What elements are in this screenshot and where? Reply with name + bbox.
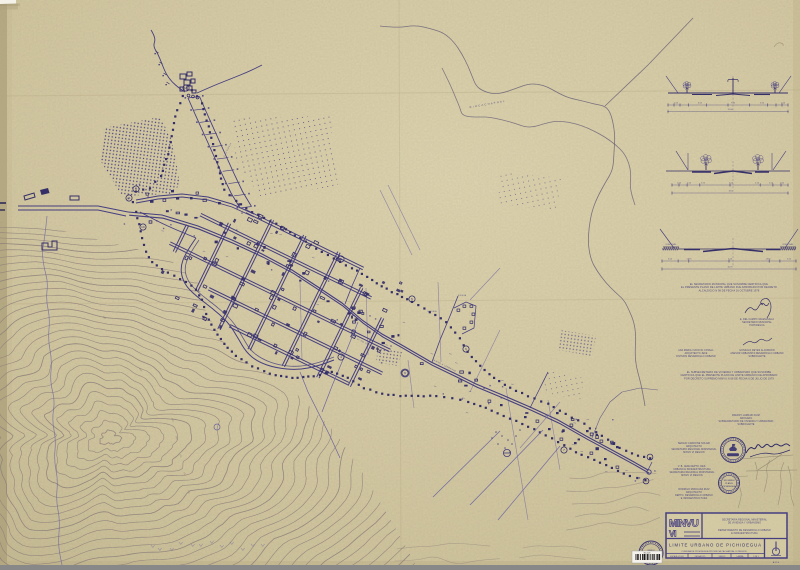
svg-text:ABOGADO: ABOGADO [740, 417, 752, 420]
svg-text:V. B. JEFE DEPTO. DES.: V. B. JEFE DEPTO. DES. [678, 466, 707, 468]
svg-text:GONZALO REYES ALCORDON: GONZALO REYES ALCORDON [739, 349, 775, 352]
svg-text:SECRETARIA REGIONAL MINISTERIA: SECRETARIA REGIONAL MINISTERIAL [722, 519, 768, 522]
svg-text:DEPARTAMENTO DE DESARROLLO URB: DEPARTAMENTO DE DESARROLLO URBANO [718, 529, 771, 532]
svg-text:LIMITE URBANO DE PICHIDEGUA: LIMITE URBANO DE PICHIDEGUA [669, 543, 762, 548]
svg-text:1: 1 [135, 187, 137, 191]
svg-text:SERGIO CARDONE SOLARI: SERGIO CARDONE SOLARI [678, 442, 710, 445]
svg-text:ARQUITECTO JEFE: ARQUITECTO JEFE [685, 352, 708, 355]
svg-text:E. DEL CAMPO VALENZUELA: E. DEL CAMPO VALENZUELA [740, 318, 774, 321]
svg-text:1 DE 1: 1 DE 1 [753, 556, 759, 558]
svg-text:ESCUELA: ESCUELA [427, 310, 437, 313]
svg-text:VI: VI [669, 529, 676, 539]
svg-text:2: 2 [185, 86, 187, 90]
svg-text:SECRETARIO REGIONAL MINISTERIA: SECRETARIO REGIONAL MINISTERIAL [671, 448, 717, 451]
svg-text:1.875: 1.875 [686, 258, 692, 260]
svg-text:18.00: 18.00 [728, 190, 734, 192]
svg-text:SR. MINVU: SR. MINVU [724, 480, 735, 482]
svg-text:COMUNA DE PICHIDEGUA PROVINCI: COMUNA DE PICHIDEGUA PROVINCIA CACHAPOAL… [681, 550, 747, 553]
svg-text:ESCALA 1:2.000: ESCALA 1:2.000 [670, 555, 684, 558]
svg-text:B: B [654, 470, 656, 473]
svg-text:LAMINA: LAMINA [737, 555, 744, 558]
svg-text:7: 7 [563, 448, 565, 452]
svg-text:URBANO E INFRAESTRUCTURA: URBANO E INFRAESTRUCTURA [673, 468, 711, 471]
svg-text:FREDDY LARRAIN RUIZ: FREDDY LARRAIN RUIZ [732, 414, 760, 417]
svg-text:15.00: 15.00 [727, 109, 733, 111]
svg-text:MC-0023: MC-0023 [644, 553, 651, 555]
svg-text:A 4 1-4: A 4 1-4 [773, 561, 780, 564]
svg-text:5: 5 [411, 297, 413, 301]
svg-text:ARQUITECTO: ARQUITECTO [686, 445, 702, 448]
svg-text:SUBSECRETARIO DE VIVIENDA Y UR: SUBSECRETARIO DE VIVIENDA Y URBANISMO [719, 420, 774, 423]
svg-text:PLAN B: PLAN B [725, 482, 733, 485]
svg-text:MINVU VI REGION: MINVU VI REGION [683, 452, 705, 454]
svg-text:6: 6 [465, 347, 467, 351]
svg-text:SUBROGANTE: SUBROGANTE [748, 355, 765, 358]
svg-text:ASESOR URBANISTA DESARROLLO UR: ASESOR URBANISTA DESARROLLO URBANO [730, 352, 783, 355]
svg-text:10: 10 [141, 225, 145, 229]
svg-text:ALCALDICIO N 98 DE FECHA 16: ALCALDICIO N 98 DE FECHA 16 OCTUBRE 1978 [699, 289, 760, 292]
svg-text:PICHIDEGUA: PICHIDEGUA [723, 485, 737, 488]
svg-text:DIBUJO: DIBUJO [719, 556, 726, 558]
svg-text:FECHA 1979: FECHA 1979 [695, 555, 706, 558]
svg-text:PICHIDEGUA: PICHIDEGUA [749, 324, 765, 327]
svg-text:SUBROGANTE: SUBROGANTE [737, 423, 754, 426]
svg-text:BODEGA: BODEGA [458, 294, 467, 297]
svg-text:16.75: 16.75 [727, 266, 733, 268]
svg-text:E INFRAESTRUCTURA: E INFRAESTRUCTURA [731, 532, 758, 535]
svg-text:1.875: 1.875 [765, 258, 771, 260]
svg-text:DIVISION DESARROLLO URBANO: DIVISION DESARROLLO URBANO [676, 355, 716, 358]
svg-text:ANA MARIA VUCOVIC COVELL: ANA MARIA VUCOVIC COVELL [678, 349, 714, 352]
svg-text:SECRETARIO MUNICIPAL: SECRETARIO MUNICIPAL [742, 321, 772, 324]
svg-text:4: 4 [340, 355, 342, 359]
svg-text:9: 9 [404, 371, 406, 375]
svg-text:ARQUITECTO: ARQUITECTO [686, 491, 702, 494]
svg-text:RODRIGO MONCADA RUIZ: RODRIGO MONCADA RUIZ [678, 488, 710, 491]
svg-text:3: 3 [340, 257, 342, 261]
svg-text:DE VIVIENDA Y URBANISMO: DE VIVIENDA Y URBANISMO [728, 522, 761, 525]
svg-text:POR DECRETO SUPREMO MINVU N: POR DECRETO SUPREMO MINVU N 86 DE FECHA … [684, 377, 774, 380]
svg-text:DEPTO. DESARROLLO URBANO: DEPTO. DESARROLLO URBANO [675, 494, 713, 497]
svg-text:SECRETARIA REGIONAL MINISTERIA: SECRETARIA REGIONAL MINISTERIAL [670, 471, 716, 474]
svg-text:MINVU VI REGION: MINVU VI REGION [681, 475, 703, 477]
svg-text:E INFRAESTRUCTURA: E INFRAESTRUCTURA [681, 497, 708, 500]
